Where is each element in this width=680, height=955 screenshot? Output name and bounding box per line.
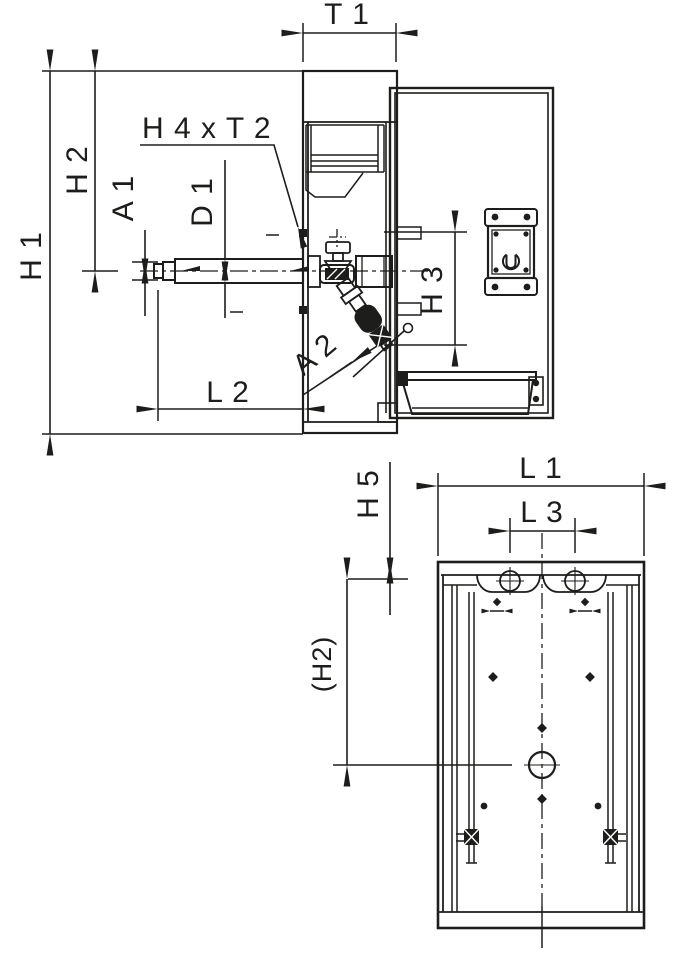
rail-clamp-right	[603, 829, 626, 845]
dim-label-h2ref: (H2)	[307, 636, 337, 693]
dim-label-l3: L 3	[520, 496, 564, 529]
dim-label-h4xt2: H 4 x T 2	[142, 112, 272, 145]
screw-icon	[524, 284, 531, 291]
adjust-symbol-left	[490, 598, 504, 611]
dim-label-l1: L 1	[519, 452, 563, 485]
cabinet-outline	[438, 562, 644, 928]
reference-points	[481, 672, 602, 809]
dim-label-h2: H 2	[61, 145, 94, 195]
dim-label-t1: T 1	[324, 0, 370, 31]
dim-a2-arrow	[330, 362, 352, 377]
technical-drawing-page: H 1 H 2 A 1 D 1 H 4 x T 2 T 1 H 3 L 2 A …	[0, 0, 680, 955]
bottom-rail	[397, 372, 543, 414]
pin-ring-icon	[404, 324, 413, 333]
dim-label-a1: A 1	[107, 175, 140, 221]
rail-clamp-left	[456, 829, 479, 845]
screw-icon	[524, 214, 531, 221]
front-view: L 1 L 3 H 5 (H2)	[307, 452, 644, 948]
h4xt2-leader	[140, 145, 298, 227]
dim-label-h1: H 1	[15, 231, 48, 281]
adjust-symbol-right	[578, 598, 592, 611]
side-view: H 1 H 2 A 1 D 1 H 4 x T 2 T 1 H 3 L 2 A …	[15, 0, 553, 434]
t-screw-cap	[326, 242, 350, 253]
housing-outline	[386, 88, 553, 418]
keyhole-plate	[485, 209, 537, 295]
shaft-coupling	[308, 229, 392, 287]
keyhole-icon	[503, 255, 519, 270]
dim-label-l2: L 2	[206, 376, 250, 409]
screw-icon	[492, 284, 499, 291]
dim-label-h5: H 5	[352, 469, 385, 519]
drawing-canvas: H 1 H 2 A 1 D 1 H 4 x T 2 T 1 H 3 L 2 A …	[0, 0, 680, 955]
spindle-shaft	[140, 259, 428, 283]
screw-icon	[492, 214, 499, 221]
dim-label-d1: D 1	[186, 177, 219, 227]
